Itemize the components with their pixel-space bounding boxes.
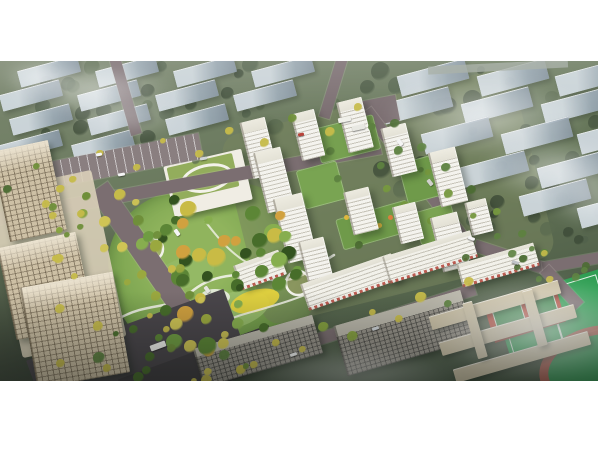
courtyard-play-feature	[388, 215, 393, 220]
tree	[581, 267, 588, 274]
tree	[218, 338, 229, 349]
tree	[93, 321, 103, 331]
tree	[347, 331, 358, 342]
tree	[334, 175, 342, 183]
tree	[49, 203, 57, 211]
tree	[563, 227, 574, 238]
tree	[519, 255, 528, 264]
render-page	[0, 0, 600, 450]
tree	[240, 248, 252, 260]
tree	[176, 264, 185, 273]
aerial-rendering-image	[0, 61, 598, 381]
tree	[133, 164, 140, 171]
tree	[56, 227, 63, 234]
tree	[275, 211, 285, 221]
tree	[202, 271, 213, 282]
tree	[441, 163, 450, 172]
tree	[56, 185, 65, 194]
tree	[540, 222, 555, 237]
tree	[232, 271, 240, 279]
tree	[69, 176, 76, 183]
tree	[290, 269, 303, 282]
tree	[221, 87, 234, 100]
tree	[42, 200, 50, 208]
tree	[272, 339, 280, 347]
office-tower-beige	[20, 272, 130, 381]
tree	[369, 309, 376, 316]
tree	[177, 218, 189, 230]
tree	[236, 284, 244, 292]
tree	[198, 297, 204, 303]
tree	[170, 318, 183, 331]
tree	[49, 212, 57, 220]
tree	[260, 138, 269, 147]
tree	[54, 254, 64, 264]
fog-cloud	[0, 61, 80, 91]
tree	[71, 273, 78, 280]
tree	[360, 80, 375, 95]
tree	[574, 235, 584, 245]
tree	[100, 244, 109, 253]
tree	[99, 216, 111, 228]
tree	[198, 337, 217, 356]
tree	[207, 248, 226, 267]
tree	[518, 230, 527, 239]
tree	[288, 114, 296, 122]
tree	[133, 215, 145, 227]
tree	[354, 103, 363, 112]
tree	[415, 292, 426, 303]
tree	[462, 254, 470, 262]
tree	[225, 127, 234, 136]
tree	[219, 350, 230, 361]
tree	[252, 233, 268, 249]
tree	[153, 231, 162, 240]
tree	[371, 62, 390, 81]
tree	[279, 231, 291, 243]
tree	[318, 322, 328, 332]
tree	[168, 265, 176, 273]
tree	[508, 250, 516, 258]
tree	[145, 352, 155, 362]
tree	[204, 216, 213, 225]
tree	[444, 189, 454, 199]
tree	[232, 318, 244, 330]
tree	[395, 315, 403, 323]
tree	[234, 300, 243, 309]
tree	[245, 206, 261, 222]
tree	[180, 201, 196, 217]
tree	[201, 375, 212, 381]
tree	[184, 340, 197, 353]
tree	[494, 233, 501, 240]
fog-cloud	[60, 97, 190, 137]
tree	[383, 185, 390, 192]
tree	[93, 352, 104, 363]
tree	[467, 185, 477, 195]
tree	[77, 210, 85, 218]
tree	[150, 240, 163, 253]
tree	[33, 163, 40, 170]
tree	[326, 147, 335, 156]
tree	[218, 235, 230, 247]
tree	[77, 224, 83, 230]
tree	[355, 241, 364, 250]
tree	[272, 277, 287, 292]
tree	[231, 236, 241, 246]
tree	[325, 127, 335, 137]
tree	[117, 242, 128, 253]
tree	[132, 199, 140, 207]
tree	[151, 291, 161, 301]
tree	[163, 326, 170, 333]
tree	[221, 331, 229, 339]
tree	[191, 378, 197, 381]
tree	[470, 213, 477, 220]
tree	[242, 109, 252, 119]
tree	[394, 146, 403, 155]
